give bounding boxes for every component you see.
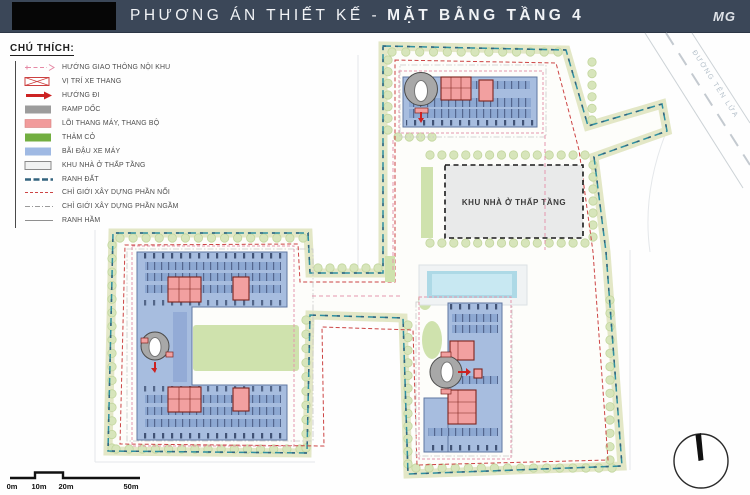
legend-item-label: RAMP DỐC: [62, 106, 101, 113]
scale-label-50: 50m: [123, 482, 138, 491]
low-rise-housing-area: KHU NHÀ Ở THẤP TẦNG: [445, 165, 583, 238]
legend-item-basement-limit: CHỈ GIỚI XÂY DỰNG PHẦN NGẦM: [23, 200, 225, 214]
north-arrow: [674, 433, 728, 488]
parking-swatch: [23, 146, 57, 157]
legend-items: HƯỚNG GIAO THÔNG NỘI KHU VỊ TRÍ XE THANG…: [15, 61, 225, 228]
legend-item-label: VỊ TRÍ XE THANG: [62, 78, 121, 85]
ramp-swatch: [23, 104, 57, 115]
legend-panel: CHÚ THÍCH: HƯỚNG GIAO THÔNG NỘI KHU VỊ T…: [10, 38, 225, 228]
red-arrow-icon: [23, 90, 57, 101]
basement-boundary-icon: [23, 215, 57, 226]
scale-label-10: 10m: [31, 482, 46, 491]
legend-item-label: BÃI ĐẬU XE MÁY: [62, 148, 120, 155]
grass-swatch: [23, 132, 57, 143]
scale-bar: 0m 10m 20m 50m: [7, 473, 140, 492]
crossed-box-icon: [23, 76, 57, 87]
legend-item-label: HƯỚNG GIAO THÔNG NỘI KHU: [62, 64, 170, 71]
traffic-direction-icon: [23, 62, 57, 73]
elevator-core: [441, 77, 493, 101]
above-limit-icon: [23, 187, 57, 198]
page: PHƯƠNG ÁN THIẾT KẾ -MẶT BẰNG TẦNG 4 MG Đ…: [0, 0, 750, 495]
low-rise-swatch: [23, 160, 57, 171]
legend-item-land-boundary: RANH ĐẤT: [23, 172, 225, 186]
legend-item-label: HƯỚNG ĐI: [62, 92, 100, 99]
core-swatch: [23, 118, 57, 129]
legend-item-label: RANH ĐẤT: [62, 176, 99, 183]
scale-label-0: 0m: [7, 482, 18, 491]
low-rise-label: KHU NHÀ Ở THẤP TẦNG: [462, 197, 566, 207]
legend-item-label: THẢM CỎ: [62, 134, 95, 141]
legend-item-above-limit: CHỈ GIỚI XÂY DỰNG PHẦN NỔI: [23, 186, 225, 200]
basement-limit-icon: [23, 201, 57, 212]
legend-item-moto-parking: BÃI ĐẬU XE MÁY: [23, 144, 225, 158]
land-boundary-icon: [23, 174, 57, 185]
building-block-north: [399, 71, 543, 133]
legend-item-label: KHU NHÀ Ở THẤP TẦNG: [62, 162, 146, 169]
legend-item-ramp: RAMP DỐC: [23, 103, 225, 117]
legend-item-label: CHỈ GIỚI XÂY DỰNG PHẦN NỔI: [62, 189, 170, 196]
legend-item-direction: HƯỚNG ĐI: [23, 89, 225, 103]
legend-item-label: LÕI THANG MÁY, THANG BỘ: [62, 120, 159, 127]
legend-item-traffic: HƯỚNG GIAO THÔNG NỘI KHU: [23, 61, 225, 75]
legend-item-label: RANH HẦM: [62, 217, 100, 224]
legend-item-label: CHỈ GIỚI XÂY DỰNG PHẦN NGẦM: [62, 203, 179, 210]
legend-item-low-rise: KHU NHÀ Ở THẤP TẦNG: [23, 158, 225, 172]
swimming-pool: [419, 265, 527, 305]
legend-item-grass: THẢM CỎ: [23, 130, 225, 144]
scale-label-20: 20m: [58, 482, 73, 491]
legend-item-fire-truck: VỊ TRÍ XE THANG: [23, 75, 225, 89]
legend-heading: CHÚ THÍCH:: [10, 43, 74, 56]
legend-item-core: LÕI THANG MÁY, THANG BỘ: [23, 117, 225, 131]
legend-item-basement-boundary: RANH HẦM: [23, 214, 225, 228]
